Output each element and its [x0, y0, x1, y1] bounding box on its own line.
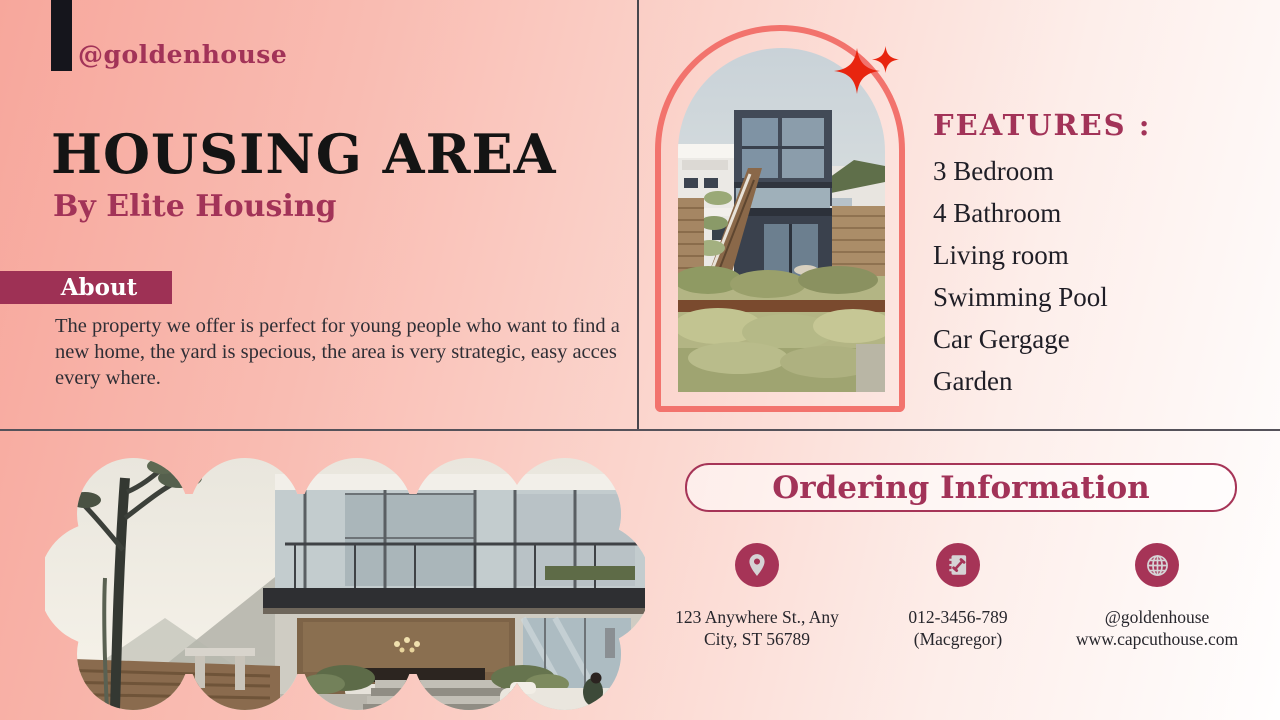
contact-line: 123 Anywhere St., Any — [675, 607, 839, 629]
contact-line: www.capcuthouse.com — [1076, 629, 1238, 651]
contact-web: @goldenhouse www.capcuthouse.com — [1057, 543, 1257, 650]
contact-line: @goldenhouse — [1076, 607, 1238, 629]
ordering-heading: Ordering Information — [772, 470, 1149, 506]
globe-icon — [1135, 543, 1179, 587]
feature-item: Car Gergage — [933, 320, 1108, 362]
about-label-bar: About — [0, 271, 172, 304]
about-paragraph: The property we offer is perfect for you… — [55, 313, 630, 391]
contact-line: 012-3456-789 — [908, 607, 1007, 629]
flyer-canvas: @goldenhouse HOUSING AREA By Elite Housi… — [0, 0, 1280, 720]
contact-book-icon — [936, 543, 980, 587]
feature-item: Garden — [933, 362, 1108, 404]
contact-line: City, ST 56789 — [675, 629, 839, 651]
brand-logo-bar — [51, 0, 72, 71]
ordering-information-box: Ordering Information — [685, 463, 1237, 512]
sparkle-icon-small — [872, 46, 899, 73]
contact-address: 123 Anywhere St., Any City, ST 56789 — [657, 543, 857, 650]
features-list: 3 Bedroom 4 Bathroom Living room Swimmin… — [933, 152, 1108, 404]
contact-phone: 012-3456-789 (Macgregor) — [858, 543, 1058, 650]
feature-item: 3 Bedroom — [933, 152, 1108, 194]
page-title: HOUSING AREA — [51, 122, 557, 186]
vertical-divider — [637, 0, 639, 430]
contact-line: (Macgregor) — [908, 629, 1007, 651]
feature-item: Living room — [933, 236, 1108, 278]
horizontal-divider — [0, 429, 1280, 431]
arch-house-photo — [678, 48, 885, 392]
location-pin-icon — [735, 543, 779, 587]
feature-item: Swimming Pool — [933, 278, 1108, 320]
about-label: About — [61, 274, 138, 301]
page-subtitle: By Elite Housing — [53, 189, 337, 224]
brand-handle: @goldenhouse — [78, 40, 287, 69]
villa-photo-scalloped — [45, 458, 645, 710]
feature-item: 4 Bathroom — [933, 194, 1108, 236]
features-heading: FEATURES : — [933, 108, 1151, 142]
